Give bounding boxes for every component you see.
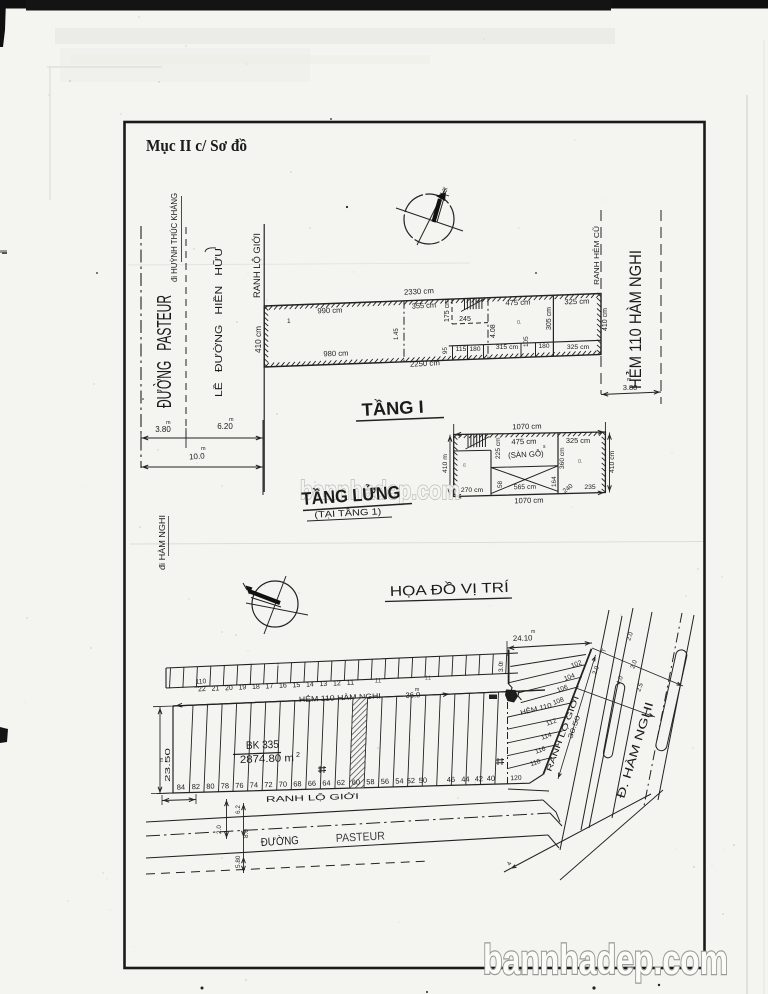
svg-text:355 cm: 355 cm (412, 300, 437, 310)
svg-text:475 cm: 475 cm (505, 298, 530, 308)
svg-text:110: 110 (195, 678, 206, 686)
svg-text:52: 52 (407, 776, 416, 785)
svg-text:305 cm: 305 cm (546, 307, 553, 330)
svg-text:120: 120 (510, 775, 522, 782)
svg-text:0.: 0. (578, 459, 583, 465)
svg-text:3.80: 3.80 (155, 425, 171, 434)
svg-text:17: 17 (265, 683, 273, 690)
svg-text:62: 62 (337, 778, 346, 787)
svg-text:315 cm: 315 cm (496, 344, 519, 351)
svg-text:m: m (229, 417, 234, 423)
svg-text:m: m (531, 629, 535, 635)
svg-text:410 cm: 410 cm (609, 450, 616, 473)
svg-text:bannhadep.com: bannhadep.com (483, 936, 728, 983)
svg-text:18: 18 (252, 684, 260, 691)
svg-text:180: 180 (469, 346, 480, 353)
svg-text:325 cm: 325 cm (566, 436, 590, 445)
svg-text:990 cm: 990 cm (317, 306, 342, 316)
svg-text:1070 cm: 1070 cm (514, 496, 543, 506)
svg-text:Mục II c/ Sơ đồ: Mục II c/ Sơ đồ (146, 136, 247, 155)
svg-text:12: 12 (333, 680, 341, 687)
svg-text:11: 11 (375, 678, 382, 685)
svg-text:19: 19 (238, 684, 246, 691)
svg-text:2250 cm: 2250 cm (410, 358, 440, 369)
svg-text:235: 235 (584, 484, 596, 491)
svg-text:LỀ ĐƯỜNG HIỀN HỮU: LỀ ĐƯỜNG HIỀN HỮU (212, 248, 225, 397)
svg-text:2: 2 (296, 752, 300, 759)
svg-text:đi HÀM NGHI: đi HÀM NGHI (157, 515, 167, 570)
svg-text:m: m (499, 660, 503, 665)
svg-text:RANH LỘ GIỚI: RANH LỘ GIỚI (252, 233, 262, 298)
svg-text:20: 20 (225, 685, 233, 692)
svg-text:44: 44 (461, 774, 470, 783)
svg-text:410 cm: 410 cm (602, 308, 609, 331)
svg-text:TẦNG I: TẦNG I (361, 396, 424, 420)
svg-text:3.80: 3.80 (623, 383, 638, 392)
svg-text:m: m (166, 420, 171, 426)
svg-text:1: 1 (287, 318, 291, 325)
svg-text:175 cm: 175 cm (444, 299, 451, 322)
svg-text:m: m (627, 377, 631, 383)
svg-text:11: 11 (347, 680, 355, 687)
svg-text:50: 50 (419, 776, 428, 785)
svg-text:565 cm: 565 cm (514, 484, 537, 492)
svg-text:58: 58 (366, 777, 375, 786)
svg-text:1.45: 1.45 (394, 328, 400, 340)
svg-text:m: m (415, 687, 419, 693)
svg-text:2874.80 m: 2874.80 m (240, 752, 295, 766)
svg-text:180: 180 (538, 343, 549, 350)
svg-text:410 m: 410 m (442, 454, 449, 473)
svg-text:BK 335: BK 335 (246, 739, 279, 752)
svg-text:95: 95 (442, 347, 449, 354)
svg-text:270 cm: 270 cm (461, 487, 484, 494)
svg-text:6.20: 6.20 (217, 422, 233, 431)
svg-text:72: 72 (264, 780, 273, 789)
svg-text:1070 cm: 1070 cm (512, 422, 541, 432)
svg-text:475 cm: 475 cm (511, 437, 536, 447)
svg-text:21: 21 (211, 685, 219, 692)
svg-text:ĐƯỜNG: ĐƯỜNG (260, 834, 299, 849)
svg-text:4.08: 4.08 (490, 324, 497, 338)
svg-text:70: 70 (279, 780, 288, 789)
svg-text:(SÀN GỖ): (SÀN GỖ) (508, 449, 544, 460)
svg-text:225 cm: 225 cm (495, 437, 502, 459)
svg-text:14: 14 (306, 681, 314, 688)
svg-text:58: 58 (497, 480, 504, 488)
svg-text:m: m (201, 446, 206, 452)
svg-text:2330 cm: 2330 cm (404, 286, 434, 297)
svg-text:HẺM 110 HÀM NGHI: HẺM 110 HÀM NGHI (626, 250, 645, 389)
svg-text:325 cm: 325 cm (564, 297, 589, 307)
svg-text:245: 245 (459, 316, 471, 323)
svg-text:6.2: 6.2 (235, 805, 242, 814)
svg-text:76: 76 (235, 781, 244, 790)
svg-text:16: 16 (279, 682, 287, 689)
svg-text:11: 11 (425, 675, 432, 682)
svg-text:46: 46 (447, 775, 456, 784)
svg-text:23.50: 23.50 (163, 748, 172, 782)
svg-text:RANH HẺM CŨ: RANH HẺM CŨ (592, 226, 601, 285)
svg-text:74: 74 (250, 780, 259, 789)
svg-text:42: 42 (475, 774, 484, 783)
svg-text:0.: 0. (517, 320, 522, 326)
svg-text:60: 60 (352, 778, 361, 787)
svg-text:m: m (159, 758, 165, 762)
svg-text:PASTEUR: PASTEUR (336, 830, 386, 845)
svg-text:82: 82 (192, 782, 201, 791)
svg-text:80: 80 (206, 782, 215, 791)
svg-text:325 cm: 325 cm (567, 344, 590, 351)
svg-text:980 cm: 980 cm (323, 349, 348, 359)
svg-text:105: 105 (523, 336, 530, 347)
svg-text:đi HUỲNH THÚC KHÁNG: đi HUỲNH THÚC KHÁNG (169, 193, 179, 282)
svg-text:360 cm: 360 cm (559, 447, 566, 469)
svg-text:2.0: 2.0 (216, 825, 223, 834)
svg-text:115: 115 (456, 346, 467, 353)
svg-text:54: 54 (395, 776, 404, 785)
svg-text:164: 164 (551, 476, 558, 487)
svg-text:6: 6 (463, 463, 466, 469)
svg-text:56: 56 (381, 777, 390, 786)
svg-text:64: 64 (322, 778, 331, 787)
svg-text:78: 78 (221, 781, 230, 790)
svg-text:40: 40 (487, 774, 496, 783)
svg-text:15: 15 (292, 682, 300, 689)
svg-text:10.0: 10.0 (189, 451, 206, 461)
svg-text:410 cm: 410 cm (254, 326, 263, 353)
svg-text:ĐƯỜNG PASTEUR: ĐƯỜNG PASTEUR (153, 295, 176, 408)
svg-text:84: 84 (177, 782, 186, 791)
svg-text:5.80: 5.80 (235, 855, 242, 868)
svg-text:66: 66 (308, 779, 317, 788)
svg-text:68: 68 (293, 779, 302, 788)
svg-text:13: 13 (319, 681, 327, 688)
